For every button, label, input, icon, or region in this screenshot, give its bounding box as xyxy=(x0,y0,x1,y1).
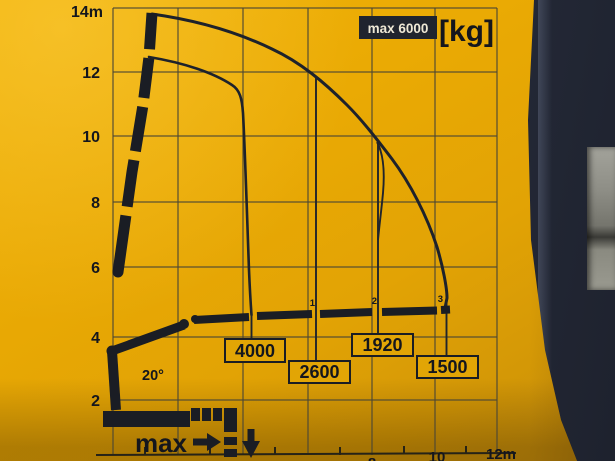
extension-bar-segment xyxy=(194,317,249,320)
load-value-boxes: 4000 2600 1920 1500 xyxy=(225,334,478,383)
extension-column-icon xyxy=(224,449,237,457)
extension-column-icon xyxy=(224,437,237,445)
x-axis-label-8: 8 xyxy=(368,455,376,461)
boom-raised-dashed xyxy=(118,13,152,272)
boom-joint-dot xyxy=(179,319,189,329)
y-axis-labels: 14m 12 10 8 6 4 2 xyxy=(71,4,103,410)
extension-bar-segment xyxy=(257,314,312,316)
crane-boom-pictograph xyxy=(103,13,199,427)
boom-joint-dot xyxy=(113,267,124,278)
x-axis-label-10: 10 xyxy=(429,449,446,461)
capacity-curve-full-boom xyxy=(152,14,447,308)
capacity-curve-short-boom xyxy=(149,57,252,315)
y-axis-label-10: 10 xyxy=(82,129,100,146)
extension-marker-2: 2 xyxy=(372,296,377,307)
y-axis-label-4: 4 xyxy=(91,330,100,347)
extension-column-icon xyxy=(224,408,237,432)
extension-bar-segment xyxy=(320,312,372,314)
y-axis-label-6: 6 xyxy=(91,260,100,277)
x-axis-label-12m: 12m xyxy=(486,446,516,461)
extension-dash-icon xyxy=(202,408,211,421)
boom-joint-dot xyxy=(107,346,118,357)
extension-dash-icon xyxy=(213,408,222,421)
y-axis-label-14m: 14m xyxy=(71,4,103,21)
extension-marker-1: 1 xyxy=(310,298,316,309)
load-value-2600: 2600 xyxy=(299,362,339,382)
extension-bar-segment xyxy=(382,311,437,313)
extension-dash-icon xyxy=(191,408,200,421)
capacity-curves xyxy=(149,14,447,315)
unit-label-kg: [kg] xyxy=(439,15,494,48)
load-value-1920: 1920 xyxy=(362,335,402,355)
photo-of-crane-load-chart: 14m 12 10 8 6 4 2 8 10 12m xyxy=(0,0,615,461)
extension-marker-3: 3 xyxy=(438,294,443,305)
right-arrow-icon xyxy=(207,433,221,451)
y-axis-label-8: 8 xyxy=(91,195,100,212)
load-diagram: 14m 12 10 8 6 4 2 8 10 12m xyxy=(0,0,615,461)
crane-base xyxy=(103,411,190,427)
boom-extension-bar: 1 2 3 xyxy=(194,294,450,320)
load-value-4000: 4000 xyxy=(235,341,275,361)
max-pictogram-label: max xyxy=(135,428,188,458)
boom-angle-label: 20° xyxy=(142,368,164,384)
boom-lowered-arm xyxy=(112,325,184,351)
down-arrow-icon xyxy=(242,441,260,458)
crane-column xyxy=(112,351,116,410)
load-value-1500: 1500 xyxy=(427,357,467,377)
max-capacity-badge: max 6000 [kg] xyxy=(359,15,494,48)
y-axis-label-12: 12 xyxy=(82,65,100,82)
extension-bar-segment xyxy=(441,310,450,311)
y-axis-label-2: 2 xyxy=(91,393,100,410)
grid-lines xyxy=(113,8,497,455)
max-capacity-label: max 6000 xyxy=(368,21,429,36)
